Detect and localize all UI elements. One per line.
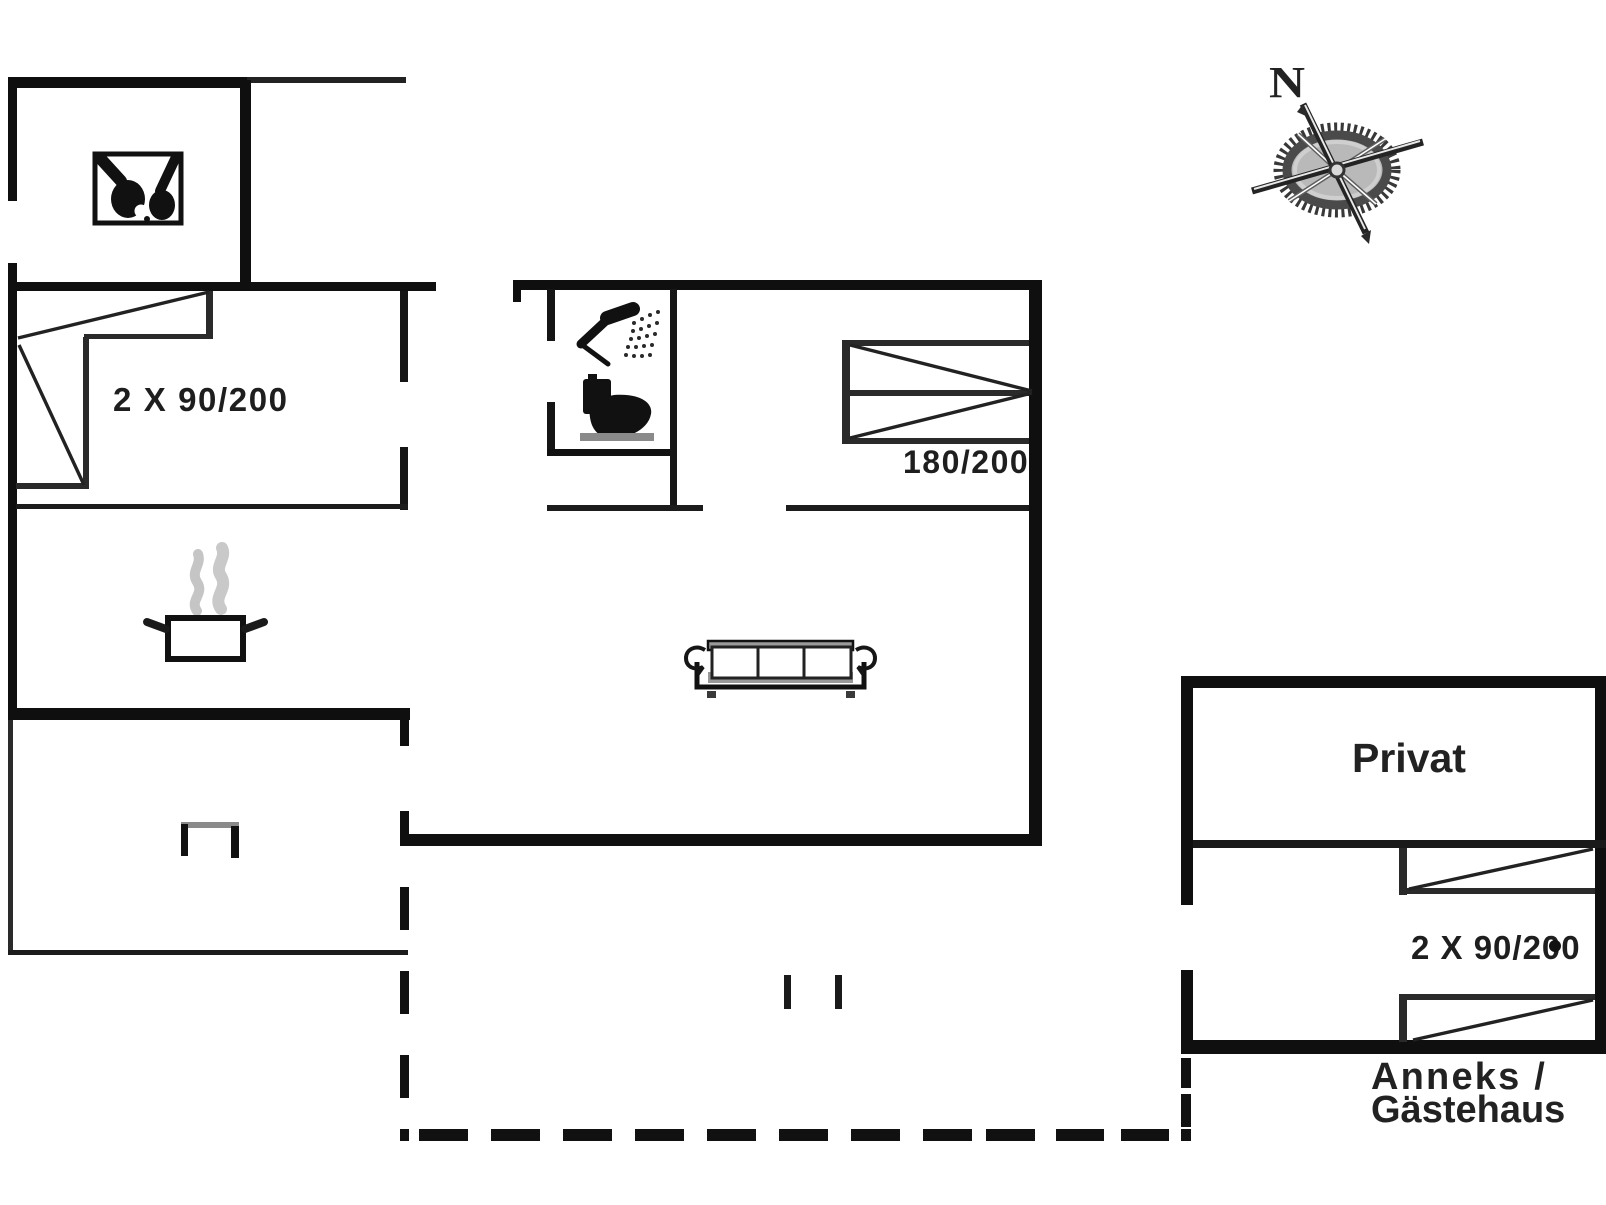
svg-text:Gästehaus: Gästehaus: [1371, 1089, 1565, 1131]
svg-text:N: N: [1269, 58, 1305, 107]
svg-text:2 X 90/200: 2 X 90/200: [113, 381, 289, 418]
svg-text:180/200: 180/200: [903, 444, 1029, 480]
svg-text:Privat: Privat: [1352, 735, 1466, 781]
